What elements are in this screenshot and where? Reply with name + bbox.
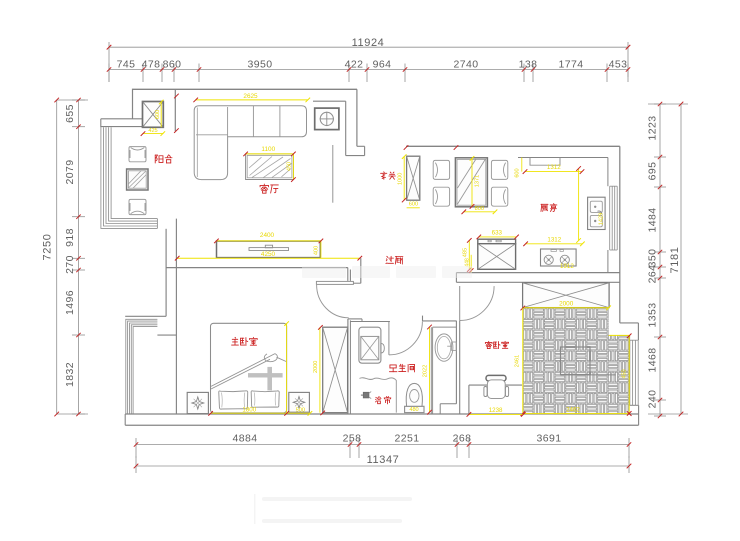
svg-text:1223: 1223 <box>647 116 659 141</box>
svg-text:1000: 1000 <box>397 173 403 185</box>
svg-text:1912: 1912 <box>560 263 574 270</box>
svg-text:2400: 2400 <box>260 232 275 239</box>
svg-text:453: 453 <box>609 58 628 70</box>
svg-text:745: 745 <box>117 58 136 70</box>
svg-text:695: 695 <box>647 162 659 181</box>
svg-text:2251: 2251 <box>395 433 420 445</box>
svg-text:918: 918 <box>64 228 76 247</box>
svg-text:138: 138 <box>519 58 538 70</box>
svg-text:264: 264 <box>647 265 659 284</box>
svg-text:2022: 2022 <box>423 365 429 377</box>
svg-text:448: 448 <box>464 258 470 267</box>
svg-text:1468: 1468 <box>647 348 659 373</box>
svg-text:1832: 1832 <box>64 362 76 387</box>
svg-text:2079: 2079 <box>64 160 76 185</box>
svg-text:2740: 2740 <box>454 58 479 70</box>
svg-text:500: 500 <box>296 408 305 414</box>
svg-text:7181: 7181 <box>669 247 681 274</box>
svg-text:1353: 1353 <box>647 303 659 328</box>
svg-text:1371: 1371 <box>475 175 481 187</box>
svg-text:270: 270 <box>64 255 76 274</box>
svg-text:1774: 1774 <box>559 58 584 70</box>
svg-text:480: 480 <box>409 407 418 413</box>
svg-text:240: 240 <box>647 390 659 409</box>
svg-text:400: 400 <box>313 246 319 255</box>
svg-text:4884: 4884 <box>233 433 258 445</box>
svg-text:485: 485 <box>462 248 468 257</box>
svg-text:422: 422 <box>345 58 364 70</box>
svg-text:258: 258 <box>343 433 362 445</box>
svg-text:11347: 11347 <box>367 454 400 466</box>
svg-text:2462: 2462 <box>566 406 580 413</box>
svg-text:600: 600 <box>155 110 161 119</box>
svg-text:478: 478 <box>142 58 161 70</box>
svg-text:1429: 1429 <box>598 213 604 225</box>
svg-text:600: 600 <box>409 201 418 207</box>
svg-text:3691: 3691 <box>537 433 562 445</box>
svg-text:3950: 3950 <box>248 58 273 70</box>
svg-text:450: 450 <box>287 162 293 171</box>
svg-text:350: 350 <box>647 249 659 268</box>
svg-text:2000: 2000 <box>559 301 574 308</box>
svg-text:600: 600 <box>514 168 520 177</box>
svg-text:2461: 2461 <box>514 355 520 367</box>
svg-text:1312: 1312 <box>547 164 561 171</box>
svg-text:964: 964 <box>373 58 392 70</box>
svg-text:2625: 2625 <box>243 93 258 100</box>
svg-text:268: 268 <box>453 433 472 445</box>
svg-text:1800: 1800 <box>242 407 256 414</box>
svg-text:425: 425 <box>148 128 157 134</box>
svg-text:450: 450 <box>621 369 627 378</box>
svg-text:1100: 1100 <box>261 146 275 153</box>
svg-text:1238: 1238 <box>489 407 503 414</box>
svg-text:1312: 1312 <box>547 236 561 243</box>
svg-text:2000: 2000 <box>313 361 319 373</box>
svg-text:655: 655 <box>64 104 76 123</box>
svg-text:633: 633 <box>492 229 503 236</box>
svg-text:1496: 1496 <box>64 290 76 315</box>
svg-text:7250: 7250 <box>42 234 54 261</box>
svg-text:4250: 4250 <box>261 251 276 258</box>
svg-text:11924: 11924 <box>352 37 385 49</box>
svg-text:800: 800 <box>475 206 484 212</box>
svg-text:860: 860 <box>163 58 182 70</box>
svg-text:1484: 1484 <box>647 208 659 233</box>
